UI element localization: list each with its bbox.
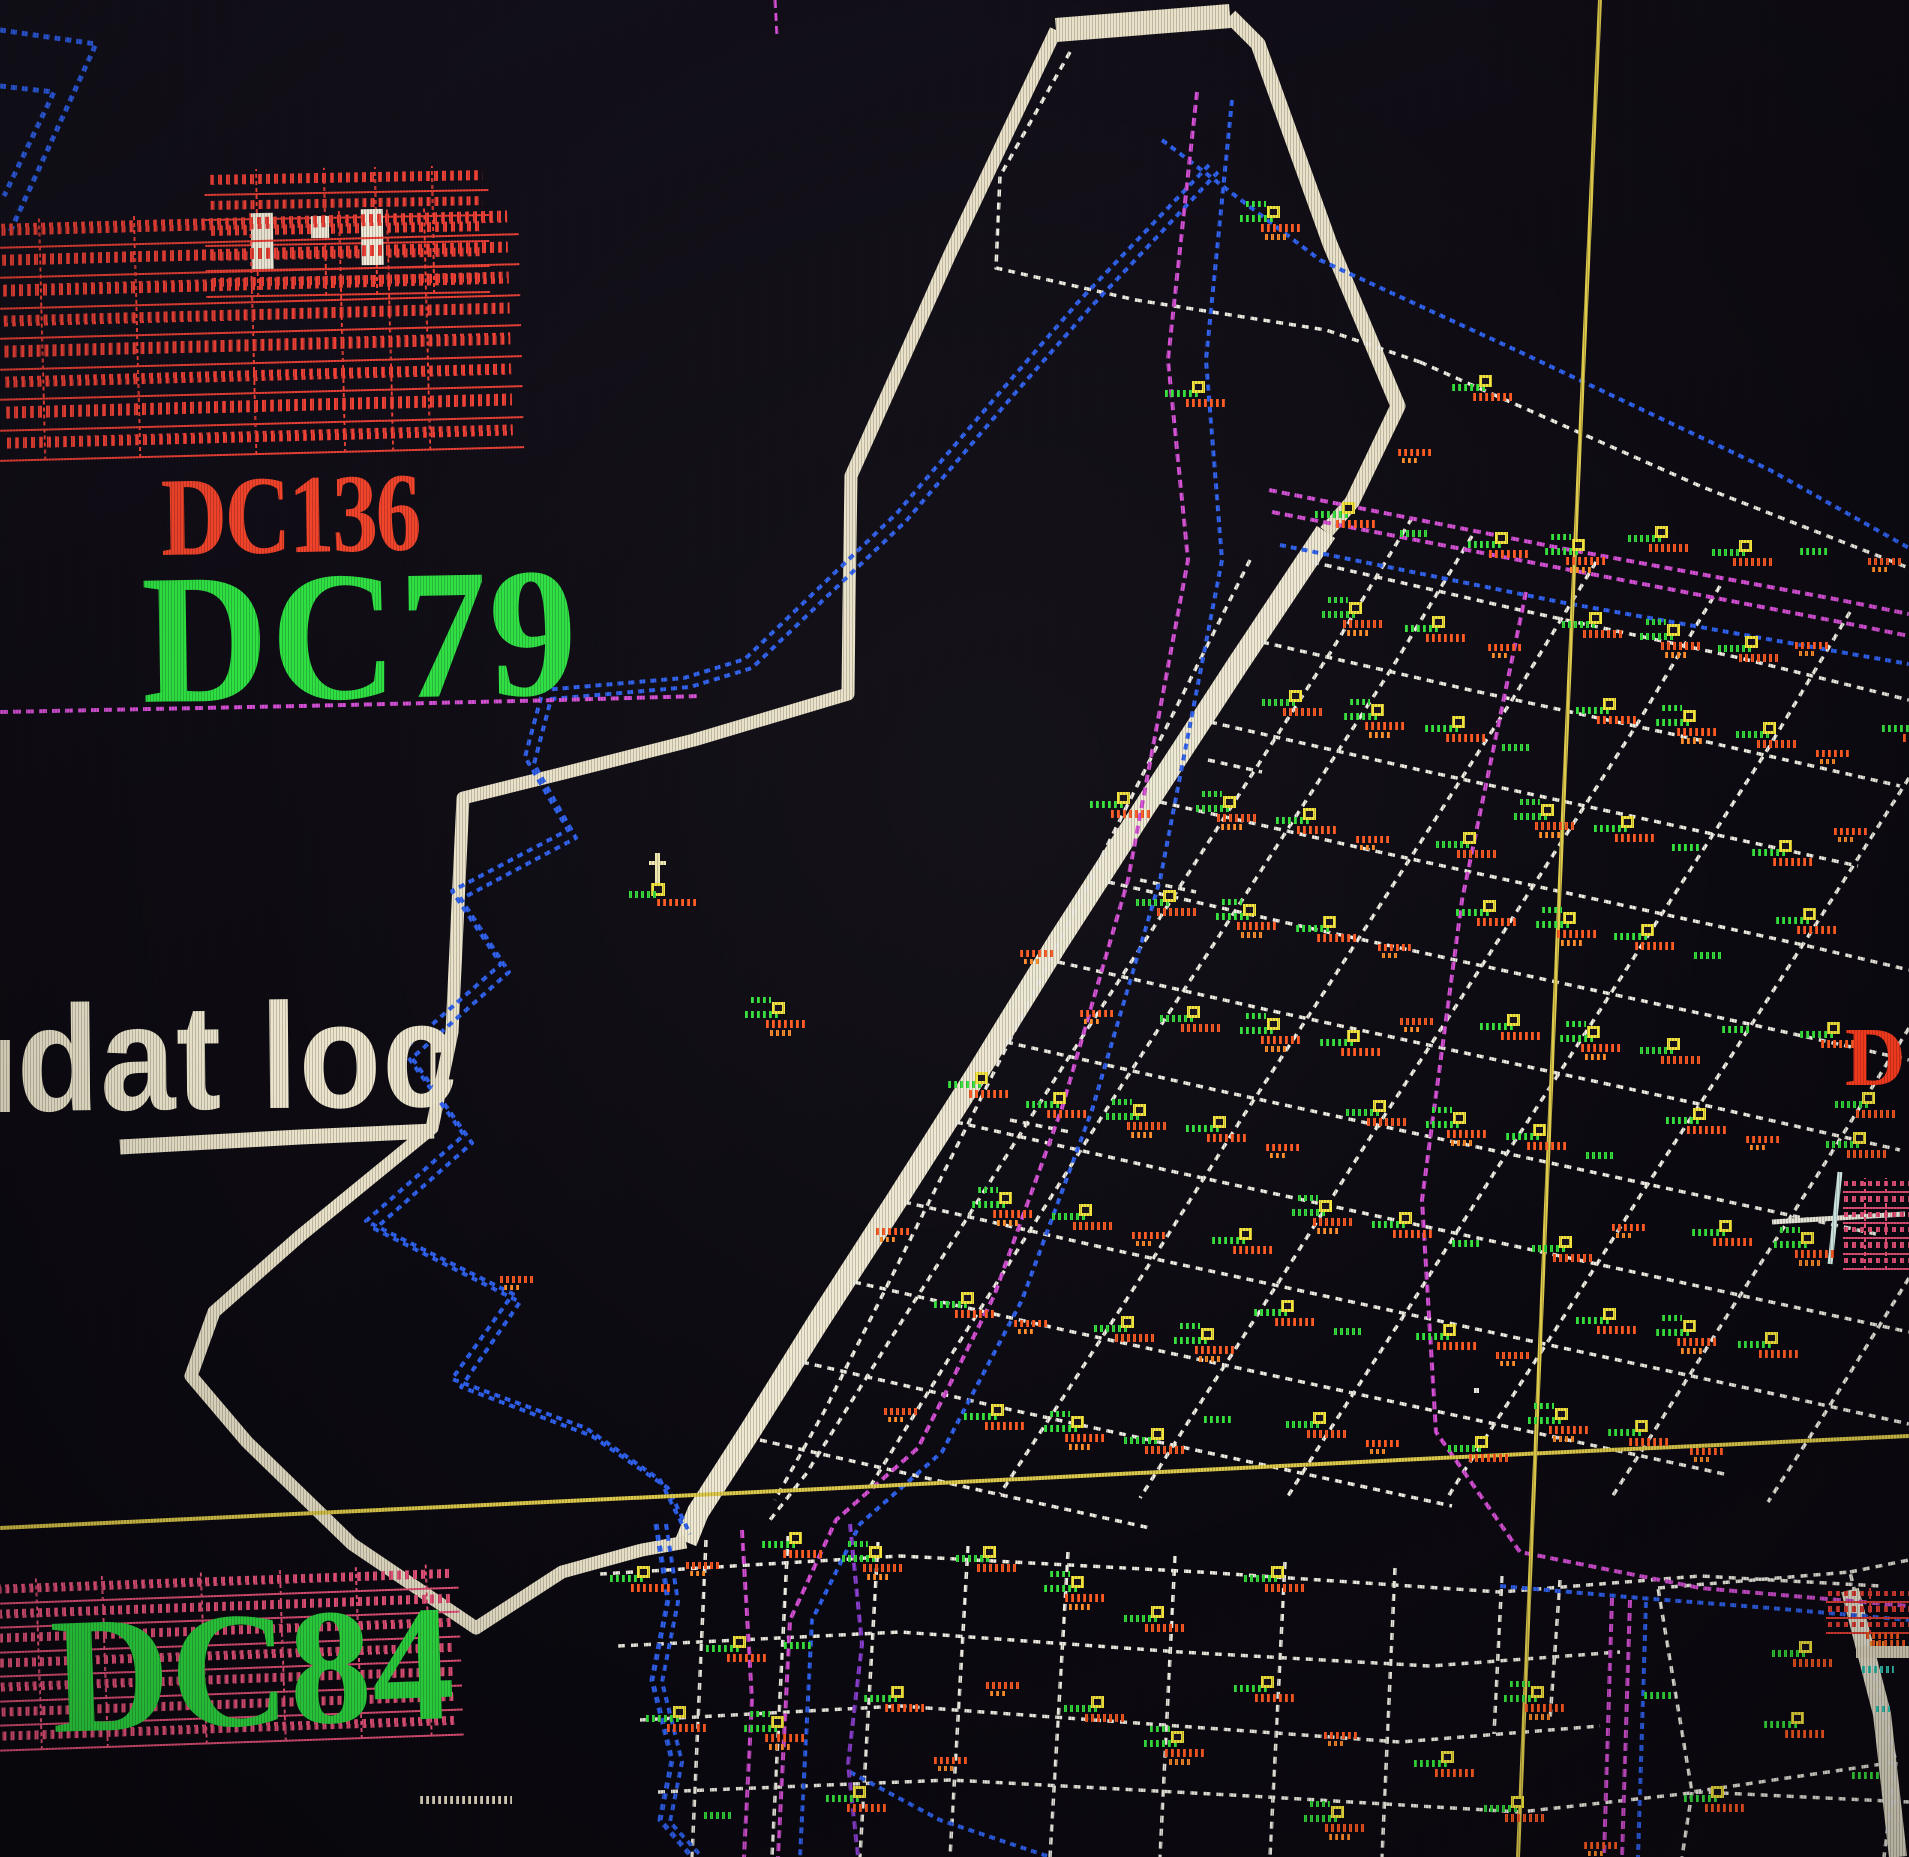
parcel-label-part: [1289, 690, 1302, 702]
parcel-label-part: [1265, 234, 1287, 240]
parcel-label-part: [1085, 1714, 1127, 1722]
parcel-label-part: [1463, 832, 1476, 844]
parcel-label-part: [1065, 1594, 1107, 1602]
parcel-label-part: [1024, 959, 1042, 964]
parcel-label-part: [884, 1408, 918, 1415]
parcel-label-part: [1563, 912, 1576, 924]
parcel-label-part: [1281, 1300, 1294, 1312]
parcel-label-part: [985, 1422, 1027, 1430]
parcel-label-part: [1502, 744, 1532, 751]
cad-table-row: [1843, 1178, 1909, 1193]
parcel-label-part: [1336, 520, 1378, 528]
parcel-label-part: [1799, 651, 1817, 656]
parcel-label-part: [1343, 620, 1385, 628]
parcel-label-part: [690, 1571, 708, 1576]
map-line-white: [692, 1540, 706, 1857]
parcel-label-part: [1298, 1195, 1318, 1201]
parcel-label-part: [1243, 904, 1256, 916]
parcel-label-part: [1683, 710, 1696, 722]
parcel-label-part: [1722, 1026, 1752, 1033]
parcel-label-part: [686, 1562, 720, 1569]
parcel-label-part: [1533, 1124, 1546, 1136]
cad-table-row: [1843, 1193, 1909, 1208]
parcel-label-part: [631, 1584, 673, 1592]
parcel-label-part: [1746, 1136, 1780, 1143]
cad-table-row: [1843, 1239, 1909, 1254]
parcel-label-part: [1204, 1416, 1234, 1423]
parcel-label-part: [1453, 1112, 1466, 1124]
map-line-blue: [850, 1772, 1050, 1857]
parcel-label-part: [1800, 548, 1830, 555]
parcel-label-part: [1803, 908, 1816, 920]
parcel-label-part: [1872, 567, 1890, 572]
parcel-label-part: [1584, 1842, 1618, 1849]
parcel-label-part: [1199, 1356, 1221, 1362]
parcel-label-part: [1443, 1324, 1456, 1336]
parcel-label-part: [1371, 704, 1384, 716]
parcel-label-part: [1267, 1018, 1280, 1030]
parcel-label-part: [1050, 1411, 1070, 1417]
map-line-blue: [1162, 140, 1909, 548]
parcel-label-part: [1157, 908, 1199, 916]
map-line-blue: [0, 86, 54, 196]
parcel-label-part: [1635, 942, 1677, 950]
parcel-label-part: [1473, 393, 1515, 401]
parcel-label-part: [1266, 1144, 1300, 1151]
map-line-blue: [1638, 1602, 1646, 1857]
parcel-label-part: [1342, 502, 1355, 514]
parcel-label-part: [1223, 796, 1236, 808]
parcel-label-part: [880, 1237, 898, 1242]
parcel-label-part: [1641, 924, 1654, 936]
parcel-label-part: [765, 1734, 807, 1742]
parcel-label-part: [1534, 1403, 1554, 1409]
parcel-label-part: [1827, 1022, 1840, 1034]
parcel-label-part: [769, 1744, 791, 1750]
parcel-label-part: [1341, 1048, 1383, 1056]
stray-point: [1474, 1388, 1479, 1393]
cad-table: [0, 204, 524, 462]
annotation-strip: [1862, 1666, 1894, 1673]
parcel-label-part: [1186, 399, 1228, 407]
parcel-label-part: [1535, 822, 1577, 830]
parcel-label-part: [1303, 808, 1316, 820]
parcel-label-part: [1241, 932, 1263, 938]
parcel-label-part: [1667, 624, 1680, 636]
parcel-label-part: [1705, 1804, 1747, 1812]
parcel-label-part: [1370, 1449, 1388, 1454]
parcel-label-part: [766, 1020, 808, 1028]
annotation-strip: [1856, 1646, 1909, 1658]
map-line-cream: [1056, 16, 1230, 30]
parcel-label-part: [1117, 792, 1130, 804]
parcel-label-part: [975, 1072, 988, 1084]
parcel-label-part: [1270, 1153, 1288, 1158]
parcel-label-part: [1202, 791, 1222, 797]
parcel-label-part: [1201, 1328, 1214, 1340]
parcel-label-part: [500, 1276, 534, 1283]
parcel-label-part: [1151, 1428, 1164, 1440]
parcel-label-part: [1145, 1624, 1187, 1632]
parcel-label-part: [1163, 890, 1176, 902]
parcel-label-part: [1356, 836, 1390, 843]
parcel-label-part: [1531, 1686, 1544, 1698]
parcel-label-part: [1495, 532, 1508, 544]
map-line-white: [1494, 1576, 1502, 1734]
parcel-label-part: [1091, 1696, 1104, 1708]
parcel-label-part: [1073, 1222, 1115, 1230]
parcel-label-part: [1646, 619, 1666, 625]
parcel-label-part: [1452, 1240, 1482, 1247]
parcel-label-part: [1213, 1116, 1226, 1128]
parcel-label-part: [1561, 940, 1583, 946]
parcel-label-part: [938, 1766, 956, 1771]
parcel-label-part: [955, 1310, 997, 1318]
parcel-label-part: [1378, 944, 1412, 951]
parcel-label-part: [1020, 950, 1054, 957]
cad-table-row: [1826, 1603, 1909, 1618]
parcel-label-part: [1483, 900, 1496, 912]
map-line-white: [1270, 1562, 1285, 1857]
parcel-label-part: [1050, 1571, 1070, 1577]
parcel-label-part: [770, 1030, 792, 1036]
parcel-label-part: [999, 1192, 1012, 1204]
map-line-white: [1850, 1560, 1909, 1572]
parcel-label-part: [1834, 828, 1868, 835]
parcel-label-part: [1739, 654, 1781, 662]
parcel-label-part: [1681, 738, 1703, 744]
parcel-label-part: [1452, 716, 1465, 728]
annotation-strip: [0, 1040, 10, 1112]
map-line-white: [1208, 760, 1262, 772]
parcel-label-part: [1398, 449, 1432, 456]
parcel-label-part: [1795, 1250, 1837, 1258]
parcel-label-part: [1324, 1732, 1358, 1739]
parcel-label-part: [1195, 1346, 1237, 1354]
map-line-magenta: [1622, 1600, 1630, 1857]
parcel-label-part: [1779, 840, 1792, 852]
parcel-label-part: [1469, 1454, 1511, 1462]
parcel-label-part: [1856, 1110, 1898, 1118]
zone-label-dc79: DC79: [140, 540, 580, 733]
parcel-label-part: [1866, 1632, 1900, 1639]
parcel-label-part: [1255, 1694, 1297, 1702]
parcel-label-part: [1181, 1024, 1223, 1032]
cad-table-row: [1826, 1588, 1909, 1603]
parcel-label-part: [783, 1550, 825, 1558]
parcel-label-part: [1404, 1027, 1422, 1032]
parcel-label-part: [1665, 652, 1687, 658]
parcel-label-part: [504, 1285, 522, 1290]
parcel-label-part: [1367, 1118, 1409, 1126]
parcel-label-part: [1400, 1018, 1434, 1025]
parcel-label-part: [1539, 832, 1561, 838]
parcel-label-part: [1603, 1308, 1616, 1320]
parcel-label-part: [1180, 1323, 1200, 1329]
parcel-label-part: [1331, 1806, 1344, 1818]
parcel-label-part: [1426, 634, 1468, 642]
parcel-label-part: [1347, 630, 1369, 636]
parcel-label-part: [1283, 708, 1325, 716]
map-line-white: [1160, 1556, 1175, 1857]
parcel-label-part: [1566, 1021, 1586, 1027]
parcel-label-part: [784, 1642, 814, 1649]
parcel-label-part: [1317, 934, 1359, 942]
parcel-label-part: [1477, 918, 1519, 926]
parcel-label-part: [1222, 899, 1242, 905]
parcel-label-part: [772, 1002, 785, 1014]
parcel-label-part: [1553, 1436, 1575, 1442]
parcel-label-part: [1677, 728, 1719, 736]
parcel-label-part: [1221, 824, 1243, 830]
parcel-label-part: [1265, 1046, 1287, 1052]
parcel-label-part: [1071, 1576, 1084, 1588]
zone-label-dc84: DC84: [48, 1580, 457, 1759]
parcel-label-part: [1334, 1328, 1364, 1335]
parcel-label-part: [1585, 1054, 1607, 1060]
parcel-label-part: [1084, 1019, 1102, 1024]
parcel-label-part: [1542, 907, 1562, 913]
cad-table-column-rule: [1885, 1178, 1887, 1270]
parcel-label-part: [1080, 1010, 1114, 1017]
annotation-strip: [1876, 1706, 1890, 1712]
map-line-white: [1382, 1568, 1395, 1857]
parcel-label-part: [1773, 858, 1815, 866]
parcel-label-part: [1868, 558, 1902, 565]
parcel-label-part: [1261, 1676, 1274, 1688]
parcel-label-part: [1360, 845, 1378, 850]
parcel-label-part: [1488, 644, 1522, 651]
parcel-label-part: [1457, 850, 1499, 858]
parcel-label-part: [969, 1090, 1011, 1098]
parcel-label-part: [1799, 1641, 1812, 1653]
parcel-label-part: [1328, 597, 1348, 603]
zone-label-d-clipped: D: [1845, 1016, 1906, 1100]
map-line-white: [1010, 1120, 1070, 1132]
parcel-label-part: [977, 1564, 1019, 1572]
parcel-label-part: [750, 1711, 770, 1717]
parcel-label-part: [1393, 1230, 1435, 1238]
parcel-label-part: [1583, 630, 1625, 638]
parcel-label-part: [1065, 1434, 1107, 1442]
parcel-label-part: [1635, 1420, 1648, 1432]
map-line-yellow: [1518, 0, 1600, 1857]
parcel-label-part: [1441, 1751, 1454, 1763]
parcel-label-part: [1297, 826, 1339, 834]
parcel-label-part: [1694, 1457, 1712, 1462]
parcel-label-part: [1237, 922, 1279, 930]
parcel-label-part: [867, 1574, 889, 1580]
parcel-label-part: [1739, 540, 1752, 552]
parcel-label-part: [1133, 1104, 1146, 1116]
parcel-label-part: [934, 1757, 968, 1764]
parcel-label-part: [891, 1686, 904, 1698]
parcel-label-part: [1400, 530, 1430, 537]
parcel-label-part: [847, 1804, 889, 1812]
parcel-label-part: [1551, 534, 1571, 540]
parcel-label-part: [1852, 1772, 1882, 1779]
map-line-white: [950, 1546, 968, 1857]
parcel-label-part: [1510, 1681, 1530, 1687]
parcel-label-part: [1349, 602, 1362, 614]
cad-table-row: [1843, 1209, 1909, 1224]
parcel-label-part: [1369, 732, 1391, 738]
cad-table: [1826, 1588, 1909, 1634]
parcel-label-part: [1329, 1834, 1351, 1840]
parcel-label-part: [1661, 1056, 1703, 1064]
parcel-label-part: [990, 1691, 1008, 1696]
parcel-label-part: [649, 861, 666, 865]
map-line-white: [1550, 1580, 1560, 1720]
parcel-label-part: [1261, 224, 1303, 232]
map-line-magenta: [742, 1530, 752, 1857]
parcel-label-part: [1615, 834, 1657, 842]
parcel-label-part: [629, 891, 657, 898]
parcel-label-part: [1246, 1013, 1266, 1019]
cad-table-column-rule: [1864, 1178, 1866, 1270]
parcel-label-part: [789, 1532, 802, 1544]
parcel-label-part: [1136, 1241, 1154, 1246]
parcel-label-part: [1662, 705, 1682, 711]
cad-table-row: [1843, 1255, 1909, 1270]
parcel-label-part: [1588, 1851, 1606, 1856]
parcel-label-part: [1566, 557, 1608, 565]
parcel-label-part: [1765, 1332, 1778, 1344]
parcel-label-part: [1587, 1026, 1600, 1038]
parcel-label-part: [863, 1564, 905, 1572]
parcel-label-part: [667, 1724, 709, 1732]
parcel-label-part: [876, 1228, 910, 1235]
parcel-label-part: [1757, 740, 1799, 748]
parcel-label-part: [1603, 698, 1616, 710]
map-line-magenta: [775, 0, 777, 36]
parcel-label-part: [1217, 814, 1259, 822]
parcel-label-part: [1399, 1212, 1412, 1224]
parcel-label-part: [986, 1682, 1020, 1689]
parcel-label-part: [1131, 1132, 1153, 1138]
parcel-label-part: [1507, 1014, 1520, 1026]
parcel-label-part: [1719, 1220, 1732, 1232]
parcel-label-part: [1853, 1132, 1866, 1144]
parcel-label-part: [1677, 1338, 1719, 1346]
parcel-label-part: [1511, 1796, 1524, 1808]
parcel-label-part: [1171, 1731, 1184, 1743]
parcel-label-part: [1115, 1334, 1157, 1342]
parcel-label-part: [1014, 1320, 1048, 1327]
parcel-label-part: [1233, 1246, 1275, 1254]
parcel-label-part: [1750, 1145, 1768, 1150]
parcel-label-part: [751, 997, 771, 1003]
cad-table: [1843, 1178, 1909, 1270]
parcel-label-part: [1053, 1092, 1066, 1104]
cad-map-viewport[interactable]: DC136 DC79 dat loc DC84 D: [0, 0, 1909, 1857]
parcel-label-part: [1644, 1692, 1674, 1699]
parcel-label-part: [1759, 1350, 1801, 1358]
parcel-label-part: [1079, 1204, 1092, 1216]
parcel-label-part: [1325, 1824, 1367, 1832]
parcel-label-part: [1649, 544, 1691, 552]
parcel-label-part: [1382, 953, 1400, 958]
parcel-label-part: [1694, 952, 1724, 959]
parcel-label-part: [1586, 1152, 1616, 1159]
parcel-label-part: [1693, 1108, 1706, 1120]
parcel-label-part: [637, 1566, 650, 1578]
parcel-label-part: [1121, 1316, 1134, 1328]
map-line-white: [868, 536, 1472, 1490]
parcel-label-part: [1672, 844, 1702, 851]
parcel-label-part: [1313, 1218, 1355, 1226]
map-line-magenta: [1604, 1598, 1612, 1857]
parcel-label-part: [1520, 799, 1540, 805]
parcel-label-part: [1687, 1126, 1729, 1134]
parcel-label-part: [1267, 206, 1280, 218]
zone-label-dat-loc: dat loc: [16, 979, 459, 1134]
parcel-label-part: [1527, 1142, 1569, 1150]
parcel-label-part: [1795, 642, 1829, 649]
map-line-white: [1768, 1278, 1909, 1502]
parcel-label-part: [1047, 1110, 1089, 1118]
parcel-label-part: [1713, 1238, 1755, 1246]
parcel-label-part: [673, 1706, 686, 1718]
map-line-creamBright: [686, 532, 1326, 1542]
parcel-label-part: [978, 1187, 998, 1193]
annotation-strip: [420, 1796, 512, 1804]
parcel-label-part: [1661, 642, 1703, 650]
parcel-label-part: [1373, 1100, 1386, 1112]
parcel-label-part: [1763, 722, 1776, 734]
parcel-label-part: [1797, 926, 1839, 934]
parcel-label-part: [1629, 1438, 1671, 1446]
parcel-label-part: [1112, 1099, 1132, 1105]
parcel-label-part: [1793, 1659, 1835, 1667]
parcel-label-part: [1239, 1228, 1252, 1240]
parcel-label-part: [1145, 1446, 1187, 1454]
parcel-label-part: [1069, 1604, 1091, 1610]
parcel-label-part: [1313, 1412, 1326, 1424]
parcel-label-part: [853, 1786, 866, 1798]
parcel-label-part: [1366, 1440, 1400, 1447]
parcel-label-part: [1111, 810, 1153, 818]
parcel-label-part: [1745, 636, 1758, 648]
parcel-label-part: [1437, 1342, 1479, 1350]
parcel-label-part: [1323, 916, 1336, 928]
parcel-label-part: [1071, 1416, 1084, 1428]
parcel-label-part: [1525, 1704, 1567, 1712]
parcel-label-part: [1328, 1741, 1346, 1746]
parcel-label-part: [1475, 1436, 1488, 1448]
parcel-label-part: [704, 1812, 734, 1819]
parcel-label-part: [961, 1292, 974, 1304]
parcel-label-part: [1132, 1232, 1166, 1239]
parcel-label-part: [1500, 1361, 1518, 1366]
parcel-label-part: [1246, 201, 1266, 207]
parcel-label-part: [1347, 1030, 1360, 1042]
parcel-label-part: [1307, 1430, 1349, 1438]
parcel-label-part: [1559, 1236, 1572, 1248]
parcel-label-part: [1192, 381, 1205, 393]
parcel-label-part: [1150, 1726, 1170, 1732]
parcel-label-part: [1496, 1352, 1530, 1359]
parcel-label-part: [1847, 1150, 1889, 1158]
cad-table-row: [1843, 1224, 1909, 1239]
parcel-label-part: [1432, 616, 1445, 628]
parcel-label-part: [1492, 653, 1510, 658]
parcel-label-part: [991, 1404, 1004, 1416]
parcel-label-part: [727, 1654, 769, 1662]
cad-table-column-rule: [1869, 1588, 1871, 1634]
parcel-label-part: [1711, 1786, 1724, 1798]
parcel-label-part: [1402, 458, 1420, 463]
